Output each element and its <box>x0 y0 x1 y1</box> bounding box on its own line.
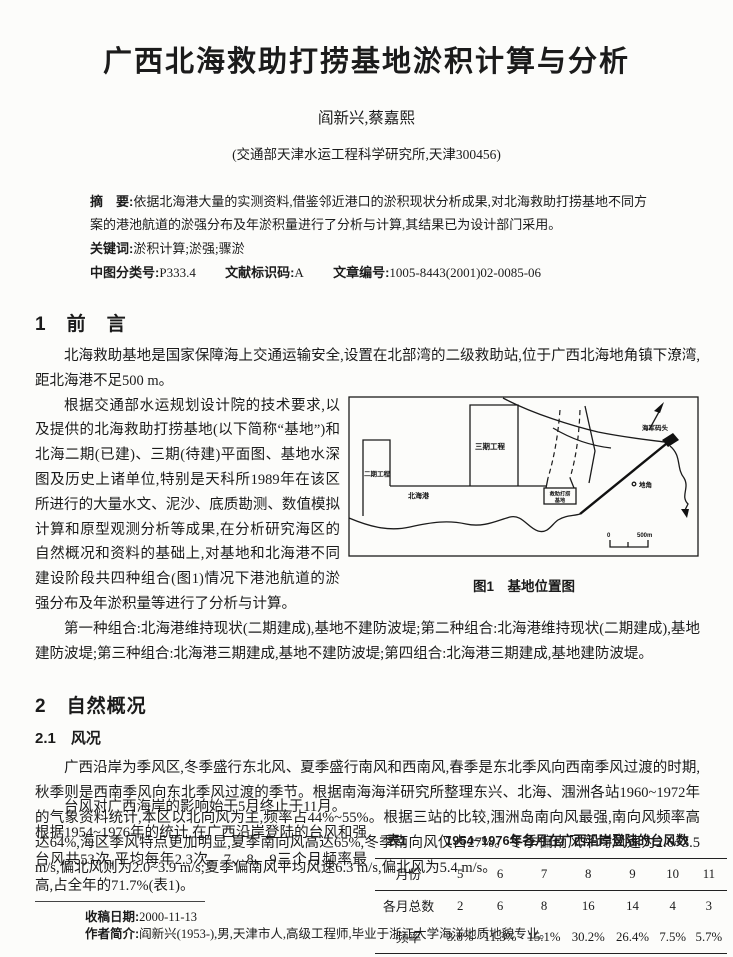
navy-wharf-label: 海军码头 <box>642 423 669 432</box>
section1-heading: 1 前 言 <box>35 309 733 336</box>
right-coastline <box>670 446 688 512</box>
table1-caption-title: 1954~1976年各月在广西沿岸登陆的台风数 <box>407 828 727 853</box>
section1-para1: 北海救助基地是国家保障海上交通运输安全,设置在北部湾的二级救助站,位于广西北海地… <box>35 344 700 394</box>
doc-code-value: A <box>294 265 303 280</box>
clc-label: 中图分类号: <box>90 265 159 280</box>
scale-bar: 0 500m <box>607 533 652 547</box>
article-id-value: 1005-8443(2001)02-0085-06 <box>389 265 541 280</box>
phase3-label: 三期工程 <box>475 441 505 451</box>
section2-1-heading: 2.1 风况 <box>35 727 733 748</box>
inner-coastline <box>553 428 611 448</box>
paper-page: 广西北海救助打捞基地淤积计算与分析 阎新兴,蔡嘉熙 (交通部天津水运工程科学研究… <box>0 0 733 957</box>
table1-caption: 表1 1954~1976年各月在广西沿岸登陆的台风数 <box>375 828 727 853</box>
footnote-block: 收稿日期:2000-11-13 作者简介:阎新兴(1953-),男,天津市人,高… <box>35 901 725 943</box>
figure1-map: 海军码头 地角 二期工程 北海港 三期工程 <box>348 396 700 560</box>
phase2-outline <box>363 440 390 516</box>
figure1: 海军码头 地角 二期工程 北海港 三期工程 <box>348 396 700 600</box>
upper-coastline <box>503 398 664 442</box>
channel-dashed-left <box>548 410 560 478</box>
table1-caption-label: 表1 <box>387 828 407 853</box>
abstract: 摘 要:依据北海港大量的实测资料,借鉴邻近港口的淤积现状分析成果,对北海救助打捞… <box>90 190 647 236</box>
dijiao-marker <box>632 482 636 486</box>
scale-zero-label: 0 <box>607 533 611 539</box>
month-cell: 7 <box>522 859 566 891</box>
bio-value: 阎新兴(1953-),男,天津市人,高级工程师,毕业于浙江大学海洋地质地貌专业。 <box>139 927 552 941</box>
channel-dashed-right <box>570 410 580 478</box>
abstract-text: 依据北海港大量的实测资料,借鉴邻近港口的淤积现状分析成果,对北海救助打捞基地不同… <box>90 194 647 232</box>
month-cell: 5 <box>442 859 478 891</box>
section2-para2-lead: 台风对广西海岸的影响始于5月终止于11月。 <box>35 795 733 820</box>
channel-funnel <box>546 478 574 488</box>
article-id-label: 文章编号: <box>333 265 389 280</box>
clc-value: P333.4 <box>159 265 195 280</box>
shoreline <box>580 444 666 514</box>
table-row-months: 月份 5 6 7 8 9 10 11 <box>375 859 727 891</box>
abstract-label: 摘 要: <box>90 194 133 209</box>
keywords: 关键词:淤积计算;淤强;骤淤 <box>90 237 647 260</box>
phase2-label: 二期工程 <box>364 469 391 478</box>
received-label: 收稿日期: <box>85 910 139 924</box>
figure1-caption: 图1 基地位置图 <box>348 575 700 600</box>
month-cell: 9 <box>610 859 654 891</box>
month-cell: 6 <box>478 859 522 891</box>
affiliation: (交通部天津水运工程科学研究所,天津300456) <box>0 143 733 163</box>
keywords-label: 关键词: <box>90 241 133 256</box>
section1-para3: 第一种组合:北海港维持现状(二期建成),基地不建防波堤;第二种组合:北海港维持现… <box>35 617 700 667</box>
south-coastline <box>349 514 580 532</box>
month-cell: 8 <box>566 859 610 891</box>
author-bio: 作者简介:阎新兴(1953-),男,天津市人,高级工程师,毕业于浙江大学海洋地质… <box>85 926 725 943</box>
row-header-months: 月份 <box>375 859 442 891</box>
received-value: 2000-11-13 <box>139 910 197 924</box>
dijiao-label: 地角 <box>639 480 652 489</box>
abstract-block: 摘 要:依据北海港大量的实测资料,借鉴邻近港口的淤积现状分析成果,对北海救助打捞… <box>90 190 647 284</box>
month-cell: 11 <box>691 859 727 891</box>
section1-body: 北海救助基地是国家保障海上交通运输安全,设置在北部湾的二级救助站,位于广西北海地… <box>35 344 700 666</box>
scale-label: 500m <box>637 533 652 539</box>
section2-para2-rest: 根据1954~1976年的统计,在广西沿岸登陆的台风和强台风共53次,平均每年2… <box>35 820 367 900</box>
classification-line: 中图分类号:P333.4 文献标识码:A 文章编号:1005-8443(2001… <box>90 261 647 284</box>
section2-heading: 2 自然概况 <box>35 691 733 718</box>
base-label-2: 基地 <box>554 496 566 504</box>
base-label-1: 救助打捞 <box>550 489 572 497</box>
month-cell: 10 <box>655 859 691 891</box>
authors: 阎新兴,蔡嘉熙 <box>0 106 733 128</box>
keywords-text: 淤积计算;淤强;骤淤 <box>133 241 244 256</box>
footnote-rule <box>35 901 205 902</box>
bio-label: 作者简介: <box>85 927 139 941</box>
received-date: 收稿日期:2000-11-13 <box>85 909 725 926</box>
doc-code-label: 文献标识码: <box>225 265 294 280</box>
beihai-port-label: 北海港 <box>408 491 430 500</box>
page-title: 广西北海救助打捞基地淤积计算与分析 <box>0 38 733 80</box>
